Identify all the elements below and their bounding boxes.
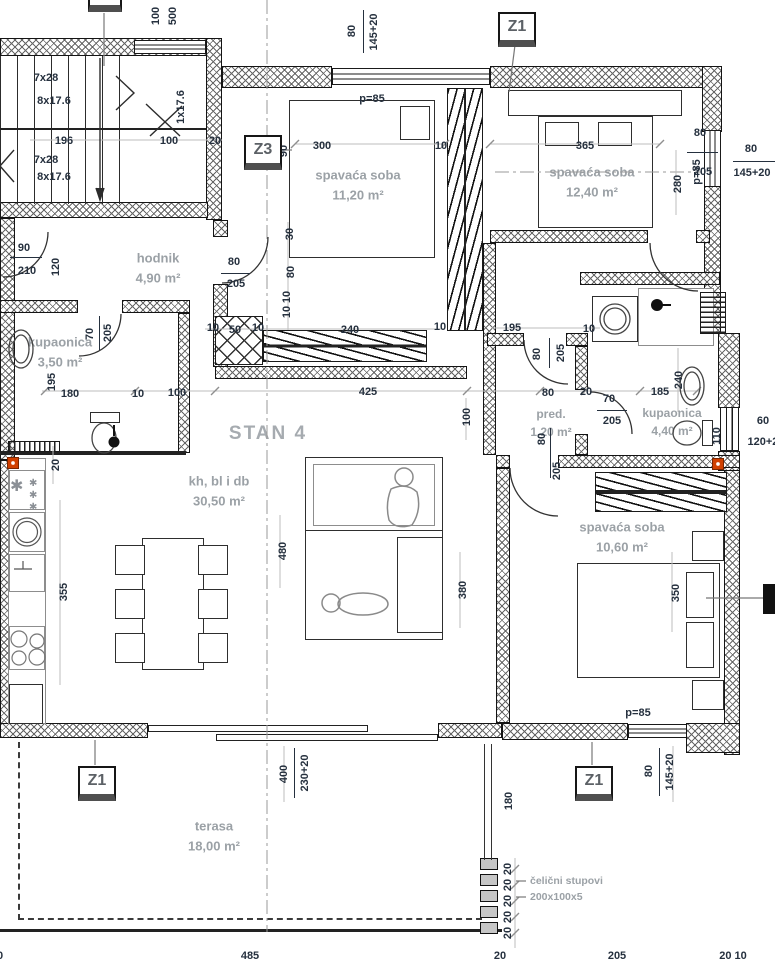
apartment-label: STAN 4: [229, 423, 307, 445]
dimension-label: 70: [603, 393, 615, 405]
nightstand: [692, 531, 724, 561]
dimension-label: 80: [531, 348, 543, 360]
wall-segment: [490, 66, 712, 88]
steel-column: [480, 906, 498, 918]
room-name: pred.: [530, 405, 571, 423]
dimension-label: 280: [672, 175, 684, 193]
dimension-label: 20: [494, 950, 506, 960]
room-label-bathroom2: kupaonica 4,40 m²: [642, 404, 701, 440]
terrace-edge-line: [0, 929, 502, 932]
freezer-icon: ✱: [29, 490, 37, 501]
dimension-label: 20: [502, 879, 514, 891]
wall-segment: [502, 723, 628, 740]
window: [628, 724, 688, 738]
wall-segment: [222, 66, 332, 88]
dim-fraction-line: [597, 410, 627, 411]
dimension-label: 7x28: [34, 72, 58, 84]
dimension-label: 205: [694, 166, 712, 178]
room-area: 4,90 m²: [136, 268, 181, 288]
room-label-bathroom1: kupaonica 3,50 m²: [28, 333, 92, 372]
dimension-label: 500: [167, 7, 179, 25]
sliding-door: [216, 734, 438, 741]
dimension-label: 120: [50, 258, 62, 276]
dimension-label: 20 10: [719, 950, 747, 960]
dimension-label: 60: [757, 415, 769, 427]
wall-segment: [686, 723, 740, 753]
dimension-label: 10: [583, 323, 595, 335]
room-name: hodnik: [136, 249, 181, 269]
wall-segment: [213, 220, 228, 237]
section-marker: [763, 584, 775, 614]
dim-fraction-line: [733, 161, 775, 162]
freezer-icon: ✱: [29, 502, 37, 513]
dimension-label: 100: [461, 408, 473, 426]
room-label-bedroom3: spavaća soba 10,60 m²: [579, 518, 664, 557]
dimension-label: 380: [457, 581, 469, 599]
dimension-label: 20: [502, 911, 514, 923]
room-label-bedroom1: spavaća soba 11,20 m²: [315, 166, 400, 205]
dimension-label: 205: [555, 344, 567, 362]
dimension-label: 10: [252, 322, 264, 334]
dimension-label: 240: [341, 324, 359, 336]
wall-segment: [438, 723, 502, 738]
room-name: terasa: [188, 817, 240, 837]
steel-column: [480, 874, 498, 886]
sofa-line: [305, 530, 443, 531]
dim-fraction-line: [99, 316, 100, 350]
dimension-label: 480: [277, 542, 289, 560]
dimension-label: 205: [603, 415, 621, 427]
pillow: [686, 572, 714, 618]
marker-z1-terrace: Z1: [78, 766, 116, 801]
dimension-label: 20: [502, 927, 514, 939]
dimension-label: 10: [281, 306, 293, 318]
wall-segment: [702, 66, 722, 132]
dimension-label: 20: [0, 950, 3, 960]
note-steel-columns-size: 200x100x5: [530, 891, 583, 903]
chair: [115, 633, 145, 663]
electrical-outlet: [712, 458, 724, 470]
dim-fraction-line: [221, 273, 250, 274]
dimension-label: 180: [61, 388, 79, 400]
dimension-label: 30: [284, 228, 296, 240]
wall-segment: [696, 230, 710, 243]
chair: [115, 545, 145, 575]
cooktop: [9, 626, 45, 670]
dim-fraction-line: [294, 748, 295, 798]
dimension-label: 100: [168, 387, 186, 399]
wall-segment: [490, 230, 648, 243]
dimension-label: 425: [359, 386, 377, 398]
dimension-label: 20: [580, 386, 592, 398]
dimension-label: 365: [576, 140, 594, 152]
dim-fraction-line: [10, 257, 42, 258]
closet: [595, 472, 727, 512]
chair: [198, 633, 228, 663]
sofa-cushion: [313, 464, 435, 526]
dimension-label: 10: [434, 321, 446, 333]
chair: [115, 589, 145, 619]
dimension-label: 8x17.6: [37, 171, 71, 183]
dimension-label: 185: [651, 386, 669, 398]
kitchen-sink-unit: [9, 512, 45, 552]
room-area: 18,00 m²: [188, 836, 240, 856]
steel-column: [480, 922, 498, 934]
room-name: kh, bl i db: [189, 472, 250, 492]
wall-segment: [0, 202, 208, 218]
dimension-label: 205: [551, 462, 563, 480]
dimension-label: 350: [670, 584, 682, 602]
dimension-label: 70: [84, 328, 96, 340]
room-name: spavaća soba: [315, 166, 400, 186]
dimension-label: 205: [608, 950, 626, 960]
dim-fraction-line: [549, 338, 550, 368]
dimension-label: 205: [102, 324, 114, 342]
window: [134, 40, 206, 54]
dimension-label: 80: [228, 256, 240, 268]
dimension-label: 20: [502, 895, 514, 907]
marker-label: Z1: [585, 772, 604, 790]
sliding-door: [148, 725, 368, 732]
dimension-label: 145+20: [368, 13, 380, 50]
dimension-label: 195: [46, 373, 58, 391]
room-label-bedroom2: spavaća soba 12,40 m²: [549, 163, 634, 202]
stair-landing-line: [0, 128, 206, 130]
sink-basin: [9, 554, 45, 592]
dimension-label: 20: [502, 863, 514, 875]
window: [704, 130, 721, 188]
window: [332, 68, 490, 85]
steel-column: [480, 890, 498, 902]
room-area: 12,40 m²: [549, 182, 634, 202]
freezer-icon: ✱: [29, 478, 37, 489]
dim-fraction-line: [659, 748, 660, 796]
dimension-label: 80: [536, 433, 548, 445]
wall-segment: [215, 366, 467, 379]
bed-headboard: [508, 90, 682, 116]
wall-segment: [0, 300, 78, 313]
pillow: [598, 122, 632, 146]
dimension-label: 90: [18, 242, 30, 254]
towel-radiator: [700, 292, 726, 334]
dimension-label: 210: [18, 265, 36, 277]
dimension-label: p=85: [625, 707, 650, 719]
dimension-label: 300: [313, 140, 331, 152]
dimension-label: 145+20: [664, 753, 676, 790]
freezer-icon: ✱: [10, 476, 23, 496]
dimension-label: 10: [132, 388, 144, 400]
dimension-label: 240: [673, 371, 685, 389]
marker-cut-top: [88, 0, 122, 12]
dimension-label: 180: [503, 792, 515, 810]
room-area: 3,50 m²: [28, 352, 92, 372]
chair: [198, 545, 228, 575]
dimension-label: 196: [55, 135, 73, 147]
dim-fraction-line: [363, 10, 364, 53]
wall-segment: [724, 470, 740, 755]
room-label-terrace: terasa 18,00 m²: [188, 817, 240, 856]
wall-segment: [496, 468, 510, 723]
marker-label: Z3: [254, 141, 273, 159]
pillow: [545, 122, 579, 146]
coffee-table: [397, 537, 443, 633]
dimension-label: 485: [241, 950, 259, 960]
dimension-label: 230+20: [299, 754, 311, 791]
dimension-label: 10: [207, 322, 219, 334]
dimension-label: 80: [643, 765, 655, 777]
wall-segment: [580, 272, 720, 285]
dimension-label: p=85: [359, 93, 384, 105]
wall-segment: [487, 333, 524, 346]
wall-segment: [206, 38, 222, 220]
dimension-label: 80: [745, 143, 757, 155]
room-name: spavaća soba: [549, 163, 634, 183]
washing-machine: [592, 296, 638, 342]
dimension-label: 7x28: [34, 154, 58, 166]
dimension-label: 100: [150, 7, 162, 25]
marker-z1-top: Z1: [498, 12, 536, 47]
dimension-label: 120+20: [747, 436, 775, 448]
electrical-outlet: [7, 457, 19, 469]
room-name: kupaonica: [28, 333, 92, 353]
nightstand: [692, 680, 724, 710]
dimension-label: 80: [285, 266, 297, 278]
wall-segment: [575, 346, 588, 390]
dimension-label: 10: [435, 140, 447, 152]
dimension-label: 20: [209, 135, 221, 147]
dimension-label: 355: [58, 583, 70, 601]
floor-plan: ✱ ✱ ✱ ✱: [0, 0, 775, 960]
room-area: 30,50 m²: [189, 491, 250, 511]
dimension-label: 8x17.6: [37, 95, 71, 107]
marker-z1-bottom: Z1: [575, 766, 613, 801]
toilet-tank: [90, 412, 120, 423]
wall-segment: [0, 218, 15, 460]
dim-fraction-line: [687, 152, 718, 153]
marker-label: Z1: [88, 772, 107, 790]
dimension-label: 145+20: [733, 167, 770, 179]
wardrobe: [447, 88, 483, 331]
dimension-label: 1x17.6: [175, 90, 187, 124]
terrace-railing: [484, 744, 492, 860]
dimension-label: 100: [160, 135, 178, 147]
radiator: [8, 441, 60, 452]
pillow: [400, 106, 430, 140]
wall-segment: [496, 455, 510, 468]
dimension-label: 80: [542, 387, 554, 399]
room-name: kupaonica: [642, 404, 701, 422]
wall-segment: [0, 723, 148, 738]
room-area: 10,60 m²: [579, 537, 664, 557]
note-steel-columns: čelični stupovi: [530, 875, 603, 887]
room-area: 11,20 m²: [315, 185, 400, 205]
dimension-label: 80: [346, 25, 358, 37]
dimension-label: 50: [229, 324, 241, 336]
chair: [198, 589, 228, 619]
wall-segment: [718, 333, 740, 408]
wall-segment: [483, 243, 496, 455]
room-name: spavaća soba: [579, 518, 664, 538]
marker-label: Z1: [508, 18, 527, 36]
pillow: [686, 622, 714, 668]
room-label-hallway: hodnik 4,90 m²: [136, 249, 181, 288]
dining-table: [142, 538, 204, 670]
marker-z3: Z3: [244, 135, 282, 170]
dimension-label: 110: [711, 427, 723, 445]
room-area: 4,40 m²: [642, 422, 701, 440]
dimension-label: 400: [278, 765, 290, 783]
dimension-label: 20: [50, 459, 62, 471]
wall-segment: [575, 434, 588, 455]
wall-segment: [122, 300, 190, 313]
dimension-label: 80: [694, 127, 706, 139]
dimension-label: 10: [281, 291, 293, 303]
dimension-label: 205: [227, 278, 245, 290]
fridge: [9, 684, 43, 724]
dimension-label: 195: [503, 322, 521, 334]
wall-segment: [178, 313, 190, 453]
room-label-living: kh, bl i db 30,50 m²: [189, 472, 250, 511]
